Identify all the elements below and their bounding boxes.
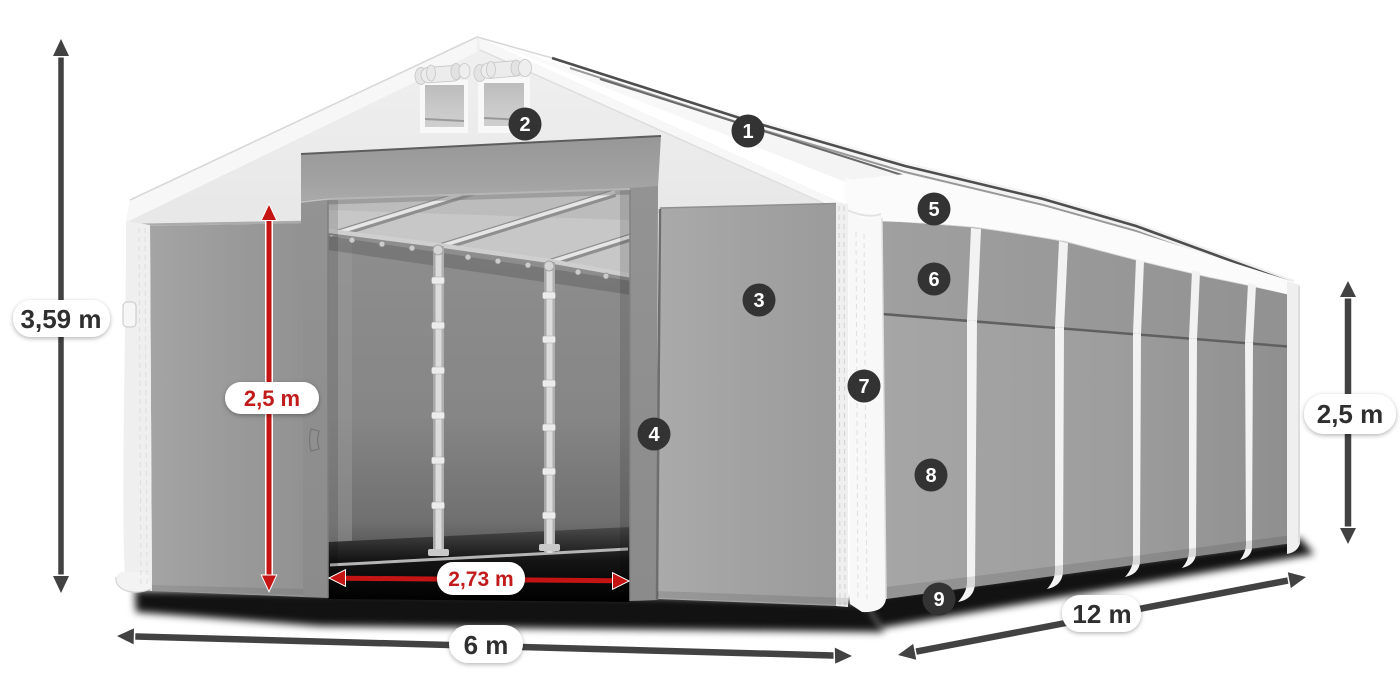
svg-text:6 m: 6 m [464,630,509,660]
svg-text:9: 9 [933,589,944,611]
svg-text:3: 3 [753,290,764,312]
svg-text:8: 8 [925,465,936,487]
svg-text:6: 6 [928,269,939,291]
svg-text:2,73 m: 2,73 m [448,568,513,591]
svg-text:5: 5 [928,199,939,221]
svg-text:2,5 m: 2,5 m [244,386,300,411]
svg-text:2: 2 [519,114,530,136]
svg-text:7: 7 [858,376,869,398]
svg-text:2,5 m: 2,5 m [1317,399,1384,429]
svg-text:4: 4 [648,424,660,446]
svg-text:1: 1 [742,121,753,143]
svg-text:12 m: 12 m [1072,599,1131,629]
svg-text:3,59 m: 3,59 m [21,304,102,334]
